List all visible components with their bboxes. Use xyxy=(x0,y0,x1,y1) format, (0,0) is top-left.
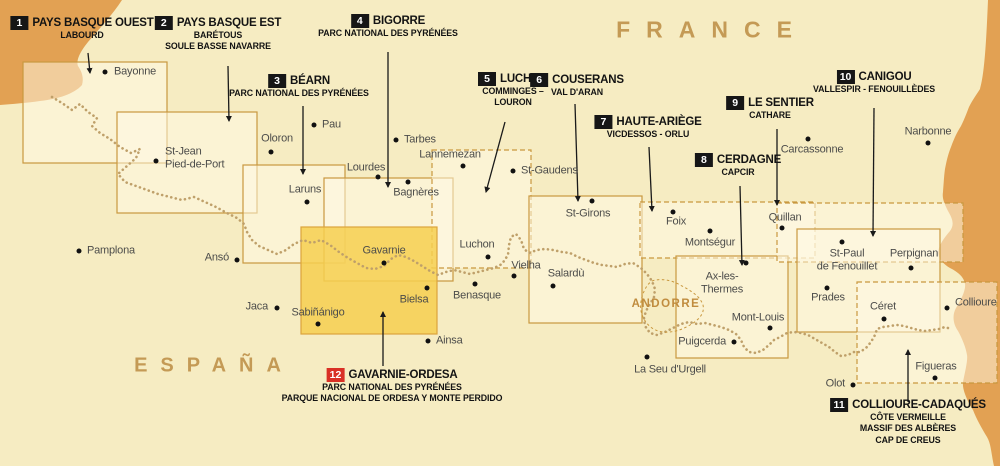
sheet-number-badge: 10 xyxy=(837,70,855,84)
city-label: Olot xyxy=(826,378,845,391)
city-dot xyxy=(305,200,310,205)
city-dot xyxy=(708,229,713,234)
sheet-subtitle: MASSIF DES ALBÈRES xyxy=(830,423,986,434)
city-label: Pau xyxy=(322,119,341,132)
sheet-subtitle: VALLESPIR - FENOUILLÈDES xyxy=(813,84,935,95)
sheet-subtitle: BARÉTOUS xyxy=(155,30,281,41)
sheet-number-badge: 3 xyxy=(268,74,286,88)
sheet-number-badge: 8 xyxy=(695,153,713,167)
sheet-title: PAYS BASQUE OUEST xyxy=(32,17,153,29)
city-label: Jaca xyxy=(246,301,268,314)
sheet-title: CANIGOU xyxy=(859,71,912,83)
sheet-number-badge: 1 xyxy=(10,16,28,30)
city-dot xyxy=(768,326,773,331)
sheet-title: COLLIOURE-CADAQUÉS xyxy=(852,399,986,411)
city-dot xyxy=(926,141,931,146)
city-dot xyxy=(154,159,159,164)
city-dot xyxy=(316,322,321,327)
sheet-number-badge: 5 xyxy=(478,72,496,86)
city-dot xyxy=(945,306,950,311)
sheet-title: BIGORRE xyxy=(373,15,425,27)
sheet-subtitle: LOURON xyxy=(478,97,548,108)
city-dot xyxy=(235,258,240,263)
city-label: St-Girons xyxy=(566,208,611,221)
city-dot xyxy=(406,180,411,185)
city-dot xyxy=(909,266,914,271)
map-sheet-label-11: 11COLLIOURE-CADAQUÉSCÔTE VERMEILLEMASSIF… xyxy=(830,398,986,446)
sheet-number-badge: 6 xyxy=(530,73,548,87)
city-dot xyxy=(394,138,399,143)
city-label: Laruns xyxy=(289,184,321,197)
city-label: Bagnères xyxy=(393,187,439,200)
map-sheet-label-8: 8CERDAGNECAPCIR xyxy=(695,153,781,178)
pyrenees-map-index: FRANCE ESPAÑA ANDORRE BayonneSt-Jean Pie… xyxy=(0,0,1000,466)
city-dot xyxy=(473,282,478,287)
city-dot xyxy=(806,137,811,142)
map-sheet-label-6: 6COUSERANSVAL D'ARAN xyxy=(530,73,624,98)
city-label: Figueras xyxy=(915,361,956,374)
sheet-number-badge: 12 xyxy=(326,368,344,382)
city-dot xyxy=(551,284,556,289)
city-label: Collioure xyxy=(955,297,997,310)
city-label: Foix xyxy=(666,216,686,229)
map-overlay: FRANCE ESPAÑA ANDORRE BayonneSt-Jean Pie… xyxy=(0,0,1000,466)
city-label: Ansó xyxy=(205,252,229,265)
city-label: Lourdes xyxy=(347,162,385,175)
city-dot xyxy=(840,240,845,245)
city-label: Narbonne xyxy=(905,126,952,139)
sheet-number-badge: 2 xyxy=(155,16,173,30)
city-label: Tarbes xyxy=(404,134,436,147)
city-dot xyxy=(851,383,856,388)
city-label: Ainsa xyxy=(436,335,463,348)
city-dot xyxy=(312,123,317,128)
sheet-title: LE SENTIER xyxy=(748,97,814,109)
city-label: La Seu d'Urgell xyxy=(634,364,706,377)
sheet-subtitle: VAL D'ARAN xyxy=(530,87,624,98)
city-label: Sabiñánigo xyxy=(291,307,344,320)
sheet-title: BÉARN xyxy=(290,75,330,87)
city-label: Céret xyxy=(870,301,896,314)
city-label: Mont-Louis xyxy=(732,312,784,325)
city-label: Salardù xyxy=(548,268,585,281)
city-label: St-Gaudens xyxy=(521,165,578,178)
sheet-title: GAVARNIE-ORDESA xyxy=(348,369,457,381)
sheet-subtitle: PARC NATIONAL DES PYRÉNÉES xyxy=(318,28,458,39)
city-dot xyxy=(77,249,82,254)
city-label: St-Jean Pied-de-Port xyxy=(165,145,224,170)
city-label: Carcassonne xyxy=(781,144,844,157)
map-sheet-label-9: 9LE SENTIERCATHARE xyxy=(726,96,814,121)
sheet-subtitle: PARQUE NACIONAL DE ORDESA Y MONTE PERDID… xyxy=(282,393,503,404)
map-sheet-label-12: 12GAVARNIE-ORDESAPARC NATIONAL DES PYRÉN… xyxy=(282,368,503,405)
sheet-title: CERDAGNE xyxy=(717,154,781,166)
city-dot xyxy=(590,199,595,204)
city-dot xyxy=(382,261,387,266)
city-label: Gavarnie xyxy=(362,245,405,258)
region-title-france: FRANCE xyxy=(616,17,808,44)
city-dot xyxy=(933,376,938,381)
sheet-title: COUSERANS xyxy=(552,74,624,86)
city-dot xyxy=(512,274,517,279)
sheet-number-badge: 9 xyxy=(726,96,744,110)
city-label: Perpignan xyxy=(890,248,938,261)
map-sheet-label-7: 7HAUTE-ARIÈGEVICDESSOS - ORLU xyxy=(594,115,701,140)
city-dot xyxy=(426,339,431,344)
city-dot xyxy=(671,210,676,215)
city-dot xyxy=(732,340,737,345)
city-label: Montségur xyxy=(685,237,735,250)
city-label: Bayonne xyxy=(114,66,156,79)
city-dot xyxy=(103,70,108,75)
city-dot xyxy=(780,226,785,231)
city-label: St-Paul de Fenouillet xyxy=(817,247,877,272)
sheet-subtitle: PARC NATIONAL DES PYRÉNÉES xyxy=(282,382,503,393)
city-dot xyxy=(461,164,466,169)
sheet-number-badge: 11 xyxy=(830,398,848,412)
city-dot xyxy=(275,306,280,311)
sheet-subtitle: PARC NATIONAL DES PYRÉNÉES xyxy=(229,88,369,99)
region-title-andorre: ANDORRE xyxy=(632,298,701,310)
city-label: Oloron xyxy=(261,133,293,146)
city-dot xyxy=(825,286,830,291)
sheet-subtitle: CATHARE xyxy=(726,110,814,121)
city-label: Vielha xyxy=(511,260,540,273)
city-label: Pamplona xyxy=(87,245,135,258)
city-label: Puigcerda xyxy=(678,336,726,349)
sheet-title: HAUTE-ARIÈGE xyxy=(616,116,701,128)
city-dot xyxy=(425,286,430,291)
city-dot xyxy=(882,317,887,322)
map-sheet-label-4: 4BIGORREPARC NATIONAL DES PYRÉNÉES xyxy=(318,14,458,39)
city-label: Quillan xyxy=(769,212,802,225)
city-label: Bielsa xyxy=(400,294,429,307)
region-title-espana: ESPAÑA xyxy=(134,355,294,378)
city-dot xyxy=(269,150,274,155)
city-dot xyxy=(376,175,381,180)
city-dot xyxy=(511,169,516,174)
city-label: Prades xyxy=(811,292,845,305)
city-label: Benasque xyxy=(453,290,501,303)
sheet-title: PAYS BASQUE EST xyxy=(177,17,281,29)
sheet-subtitle: VICDESSOS - ORLU xyxy=(594,129,701,140)
city-label: Luchon xyxy=(460,239,495,252)
sheet-subtitle: SOULE BASSE NAVARRE xyxy=(155,41,281,52)
city-dot xyxy=(645,355,650,360)
city-dot xyxy=(486,255,491,260)
sheet-number-badge: 7 xyxy=(594,115,612,129)
sheet-subtitle: CAPCIR xyxy=(695,167,781,178)
map-sheet-label-3: 3BÉARNPARC NATIONAL DES PYRÉNÉES xyxy=(229,74,369,99)
sheet-subtitle: CAP DE CREUS xyxy=(830,435,986,446)
sheet-subtitle: CÔTE VERMEILLE xyxy=(830,412,986,423)
city-label: Lannemezan xyxy=(419,149,481,162)
map-sheet-label-10: 10CANIGOUVALLESPIR - FENOUILLÈDES xyxy=(813,70,935,95)
city-label: Ax-les- Thermes xyxy=(701,270,743,295)
sheet-subtitle: LABOURD xyxy=(10,30,153,41)
sheet-number-badge: 4 xyxy=(351,14,369,28)
map-sheet-label-1: 1PAYS BASQUE OUESTLABOURD xyxy=(10,16,153,41)
map-sheet-label-2: 2PAYS BASQUE ESTBARÉTOUSSOULE BASSE NAVA… xyxy=(155,16,281,53)
city-dot xyxy=(744,261,749,266)
